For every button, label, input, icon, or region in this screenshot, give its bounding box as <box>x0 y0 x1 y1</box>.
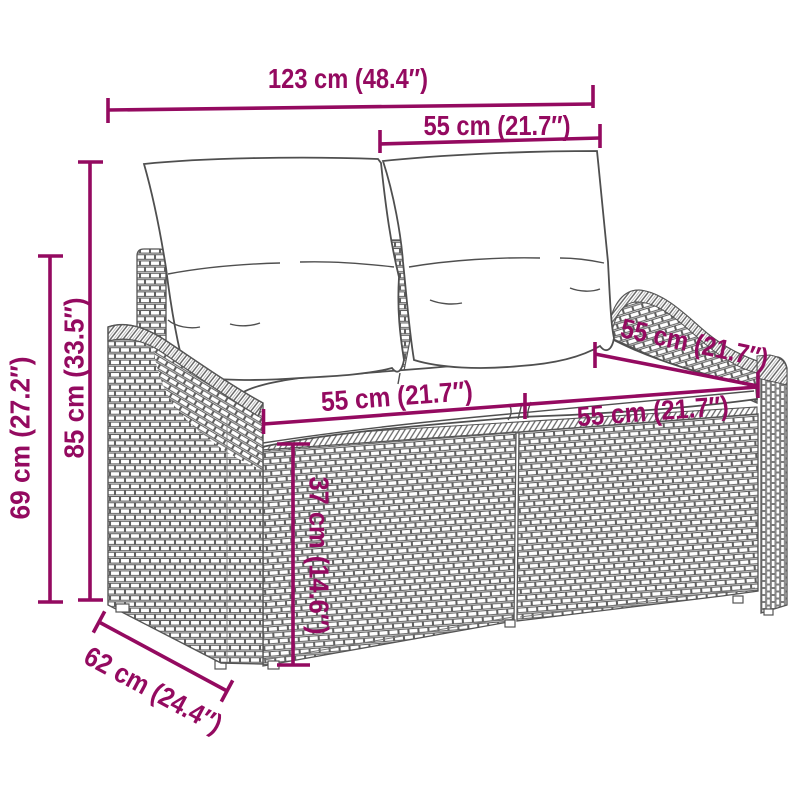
svg-text:123 cm (48.4″): 123 cm (48.4″) <box>268 63 428 94</box>
svg-text:69 cm (27.2″): 69 cm (27.2″) <box>4 357 35 520</box>
svg-text:85 cm (33.5″): 85 cm (33.5″) <box>58 298 89 459</box>
svg-text:37 cm (14.6″): 37 cm (14.6″) <box>304 477 335 635</box>
svg-text:55 cm (21.7″): 55 cm (21.7″) <box>424 110 571 141</box>
